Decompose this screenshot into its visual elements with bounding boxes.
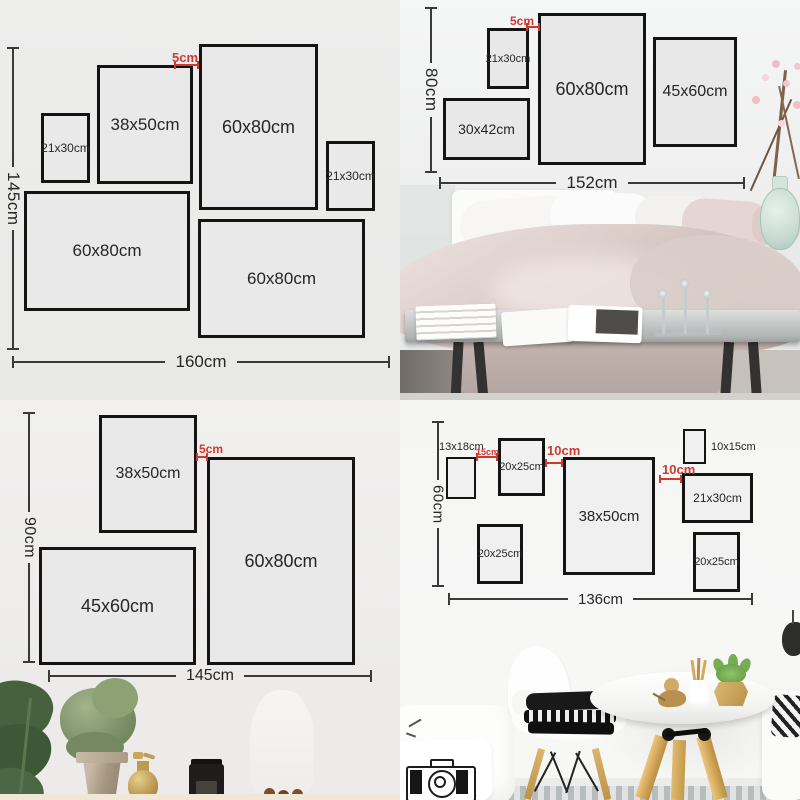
- picture-frame-21x30: 21x30cm: [487, 28, 529, 89]
- measure-cap: [23, 661, 35, 663]
- picture-frame-60x80-landscape: 60x80cm: [198, 219, 365, 338]
- white-vase: [250, 690, 314, 800]
- camera-print-lens-inner: [434, 776, 446, 788]
- blossom: [783, 80, 790, 87]
- width-measure-label: 136cm: [578, 591, 623, 608]
- quadrant-bottom-right-dining: 60cm 13x18cm 20x25cm 38x50cm 10x15cm 21x…: [400, 400, 800, 800]
- measure-line: [14, 361, 165, 363]
- measure-line: [244, 675, 370, 677]
- book-stack: [415, 304, 496, 341]
- frame-size-label: 21x30cm: [326, 169, 375, 183]
- gap-line: [174, 64, 199, 66]
- quadrant-bottom-left-diagram: 90cm 38x50cm 60x80cm 45x60cm 5cm 145cm: [0, 400, 400, 800]
- blossom: [778, 120, 785, 127]
- measure-line: [12, 230, 14, 348]
- glass-vase: [760, 188, 800, 250]
- gap-size-label: 10cm: [547, 443, 580, 458]
- picture-frame-21x30: 21x30cm: [41, 113, 90, 183]
- picture-frame-60x80: 60x80cm: [538, 13, 646, 165]
- hanging-plant-stem: [792, 610, 794, 624]
- black-jar-label: [196, 781, 217, 794]
- picture-frame-20x25: 20x25cm: [498, 438, 545, 496]
- magazine-photo: [596, 309, 639, 334]
- picture-frame-60x80-landscape: 60x80cm: [24, 191, 190, 311]
- camera-print-grip: [456, 770, 468, 794]
- measure-line: [441, 182, 556, 184]
- blossom: [794, 63, 800, 70]
- clay-pot-rim: [76, 752, 128, 763]
- picture-frame-38x50: 38x50cm: [563, 457, 655, 575]
- gap-line: [659, 478, 682, 480]
- measure-cap: [388, 356, 390, 368]
- quadrant-top-left-diagram: 145cm 21x30cm 38x50cm 60x80cm 21x30cm 60…: [0, 0, 400, 400]
- candle-holder-stem: [706, 296, 709, 334]
- gap-line: [526, 26, 540, 28]
- gap-line: [545, 462, 563, 464]
- width-measure-label: 152cm: [566, 173, 617, 193]
- measure-line: [633, 598, 751, 600]
- picture-frame-38x50: 38x50cm: [97, 65, 193, 184]
- succulent-plant: [716, 664, 746, 684]
- measure-line: [12, 49, 14, 167]
- blossom: [762, 74, 769, 81]
- gap-size-label: 10cm: [662, 462, 695, 477]
- frame-size-label: 20x25cm: [478, 548, 523, 560]
- picture-frame-20x25: 20x25cm: [477, 524, 523, 584]
- picture-frame-13x18: [446, 457, 476, 499]
- picture-frame-45x60: 45x60cm: [653, 37, 737, 147]
- measure-line: [628, 182, 743, 184]
- width-measure: 145cm: [48, 668, 372, 684]
- height-measure: 90cm: [21, 412, 37, 663]
- picture-frame-21x30-landscape: 21x30cm: [682, 473, 753, 523]
- width-measure: 160cm: [12, 354, 390, 370]
- picture-frame-21x30: 21x30cm: [326, 141, 375, 211]
- gap-size-label: 5cm: [199, 442, 223, 456]
- quadrant-top-right-bedroom: 80cm 21x30cm 60x80cm 45x60cm 30x42cm 5cm…: [400, 0, 800, 400]
- brass-mister-nozzle: [143, 752, 156, 760]
- frame-size-label: 45x60cm: [81, 596, 154, 617]
- floor-strip: [400, 393, 800, 400]
- pencil-cup: [688, 680, 710, 708]
- frame-size-label: 30x42cm: [458, 121, 515, 137]
- measure-line: [430, 117, 432, 171]
- gallery-wall-size-guide-collage: 145cm 21x30cm 38x50cm 60x80cm 21x30cm 60…: [0, 0, 800, 800]
- measure-line: [437, 528, 439, 585]
- frame-size-label: 38x50cm: [579, 508, 640, 525]
- frame-size-label: 60x80cm: [247, 269, 316, 289]
- picture-frame-20x25: 20x25cm: [693, 532, 740, 592]
- height-measure-label: 90cm: [20, 517, 38, 558]
- measure-line: [450, 598, 568, 600]
- measure-cap: [7, 348, 19, 350]
- measure-line: [28, 563, 30, 661]
- measure-cap: [743, 177, 745, 189]
- measure-cap: [425, 171, 437, 173]
- blossom: [772, 60, 780, 68]
- picture-frame-60x80: 60x80cm: [199, 44, 318, 210]
- open-magazine-left-page: [501, 308, 573, 347]
- picture-frame-45x60-landscape: 45x60cm: [39, 547, 196, 665]
- blossom: [752, 96, 760, 104]
- frame-size-label: 21x30cm: [486, 53, 531, 65]
- width-measure-label: 160cm: [175, 352, 226, 372]
- width-measure: 136cm: [448, 591, 753, 607]
- height-measure-label: 60cm: [430, 485, 447, 524]
- candle-holder-ball: [680, 279, 689, 288]
- measure-cap: [432, 585, 444, 587]
- measure-cap: [370, 670, 372, 682]
- picture-frame-38x50: 38x50cm: [99, 415, 197, 533]
- measure-line: [50, 675, 176, 677]
- blossom: [793, 101, 800, 109]
- frame-size-label: 60x80cm: [555, 79, 628, 100]
- gap-line: [476, 456, 498, 458]
- candle-holder-ball: [658, 289, 667, 298]
- frame-size-label: 38x50cm: [111, 115, 180, 135]
- picture-frame-30x42: 30x42cm: [443, 98, 530, 160]
- patterned-pillow: [771, 694, 800, 738]
- height-measure: 80cm: [423, 7, 439, 173]
- frame-size-label-outside: 10x15cm: [711, 441, 756, 453]
- frame-size-label: 38x50cm: [116, 465, 181, 483]
- frame-size-label: 20x25cm: [694, 556, 739, 568]
- frame-size-label: 21x30cm: [41, 141, 90, 155]
- measure-line: [28, 414, 30, 512]
- camera-print-grip: [410, 770, 422, 794]
- measure-cap: [751, 593, 753, 605]
- frame-size-label: 60x80cm: [222, 117, 295, 138]
- width-measure: 152cm: [439, 175, 745, 191]
- candle-holder-stem: [662, 296, 665, 334]
- frame-size-label: 45x60cm: [663, 83, 728, 101]
- hanging-plant-pom: [782, 622, 800, 656]
- candle-holder-stem: [684, 286, 687, 334]
- measure-line: [237, 361, 388, 363]
- geometric-pot: [714, 682, 748, 706]
- tabletop-strip: [0, 794, 400, 800]
- candle-holder-ball: [702, 289, 711, 298]
- height-measure-label: 145cm: [3, 172, 23, 226]
- width-measure-label: 145cm: [186, 667, 234, 685]
- brass-mister-pump: [133, 752, 143, 759]
- frame-size-label: 21x30cm: [693, 491, 742, 505]
- picture-frame-10x15: [683, 429, 706, 464]
- height-measure: 145cm: [5, 47, 21, 350]
- gap-line: [196, 456, 208, 458]
- frame-size-label: 60x80cm: [73, 241, 142, 261]
- topiary-foliage: [92, 678, 138, 718]
- height-measure-label: 80cm: [421, 68, 441, 112]
- table-leg: [671, 740, 686, 800]
- measure-line: [430, 9, 432, 63]
- frame-size-label: 20x25cm: [499, 461, 544, 473]
- frame-size-label: 60x80cm: [244, 551, 317, 572]
- picture-frame-60x80: 60x80cm: [207, 457, 355, 665]
- folded-knitwear-dark: [528, 721, 614, 734]
